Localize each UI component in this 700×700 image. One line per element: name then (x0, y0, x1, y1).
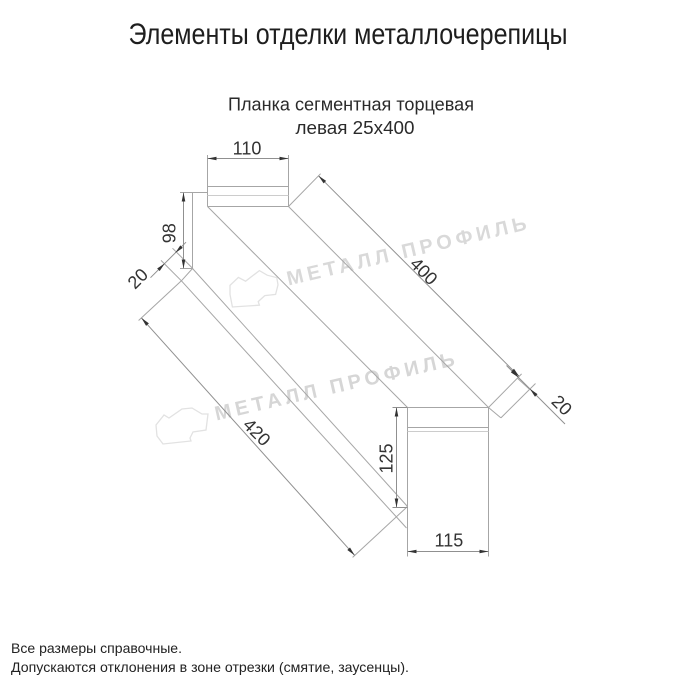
svg-text:Планка сегментная торцевая: Планка сегментная торцевая (228, 94, 474, 114)
svg-text:Элементы отделки металлочерепи: Элементы отделки металлочерепицы (129, 18, 568, 51)
svg-text:МЕТАЛЛ ПРОФИЛЬ: МЕТАЛЛ ПРОФИЛЬ (285, 212, 533, 290)
svg-text:115: 115 (435, 531, 464, 551)
svg-text:20: 20 (124, 265, 152, 293)
svg-text:20: 20 (548, 391, 576, 419)
svg-text:420: 420 (239, 415, 274, 450)
svg-text:левая 25х400: левая 25х400 (296, 118, 415, 138)
svg-text:125: 125 (377, 443, 397, 473)
svg-text:98: 98 (160, 223, 180, 243)
svg-text:110: 110 (233, 138, 262, 158)
svg-text:Все размеры справочные.: Все размеры справочные. (11, 640, 182, 656)
svg-text:МЕТАЛЛ ПРОФИЛЬ: МЕТАЛЛ ПРОФИЛЬ (213, 348, 461, 426)
svg-text:Допускаются отклонения в зоне: Допускаются отклонения в зоне отрезки (с… (11, 659, 409, 675)
